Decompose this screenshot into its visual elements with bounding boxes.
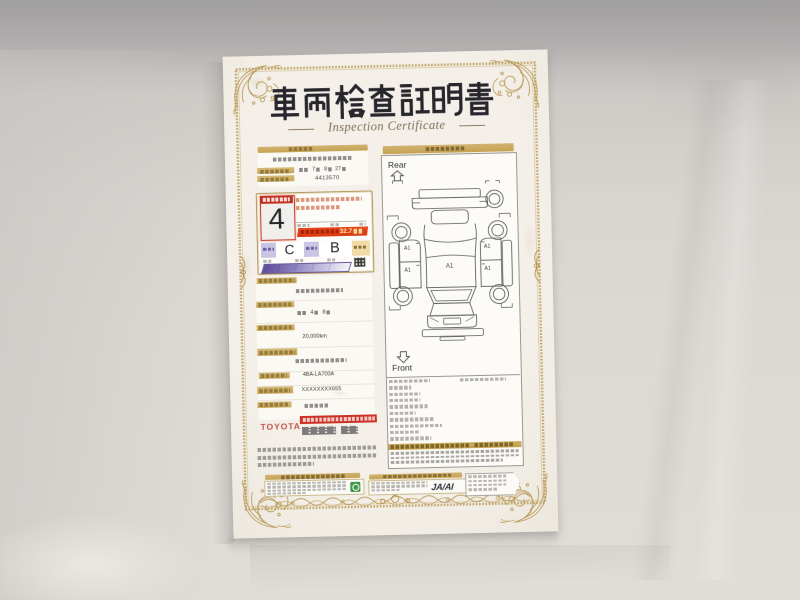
svg-text:A1: A1: [445, 263, 453, 269]
svg-text:A1: A1: [403, 245, 410, 251]
svg-text:A1: A1: [484, 266, 491, 272]
svg-text:A1: A1: [404, 267, 411, 273]
svg-text:A1: A1: [483, 244, 490, 250]
